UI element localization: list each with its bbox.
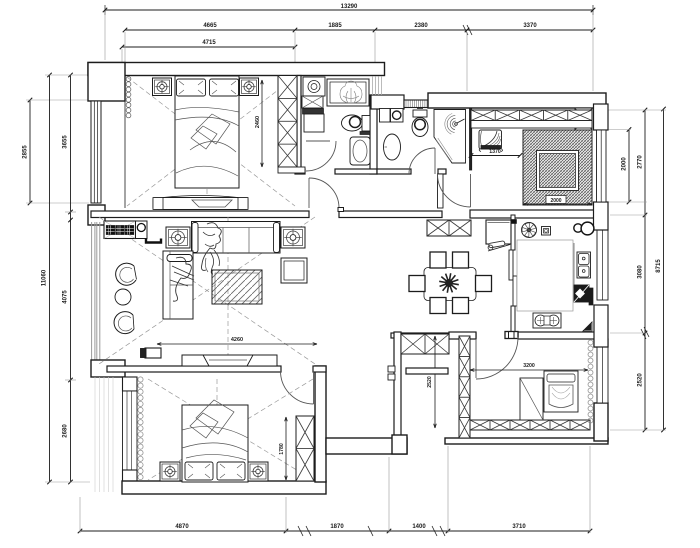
svg-text:3655: 3655	[63, 135, 69, 149]
svg-text:2380: 2380	[414, 23, 428, 29]
svg-text:2520: 2520	[638, 373, 644, 387]
svg-text:13290: 13290	[341, 4, 358, 10]
svg-text:4665: 4665	[203, 23, 217, 29]
svg-text:1400: 1400	[412, 524, 426, 530]
svg-text:2770: 2770	[638, 155, 644, 169]
svg-text:1370: 1370	[489, 149, 501, 155]
svg-text:11060: 11060	[42, 269, 48, 286]
svg-text:4870: 4870	[175, 524, 189, 530]
svg-text:1870: 1870	[330, 524, 344, 530]
svg-text:1780: 1780	[279, 443, 285, 455]
svg-text:8715: 8715	[656, 259, 662, 273]
svg-text:4715: 4715	[202, 40, 216, 46]
svg-text:2460: 2460	[255, 116, 261, 128]
svg-text:3710: 3710	[512, 524, 526, 530]
svg-text:3200: 3200	[523, 363, 535, 369]
svg-text:3370: 3370	[523, 23, 537, 29]
svg-text:2855: 2855	[23, 145, 29, 159]
svg-text:4075: 4075	[63, 290, 69, 304]
svg-text:3080: 3080	[638, 265, 644, 279]
svg-text:2680: 2680	[63, 424, 69, 438]
svg-text:1885: 1885	[328, 23, 342, 29]
svg-text:4260: 4260	[231, 337, 243, 343]
svg-text:2000: 2000	[622, 157, 628, 171]
svg-text:2000: 2000	[550, 198, 561, 204]
svg-text:2520: 2520	[427, 376, 433, 388]
